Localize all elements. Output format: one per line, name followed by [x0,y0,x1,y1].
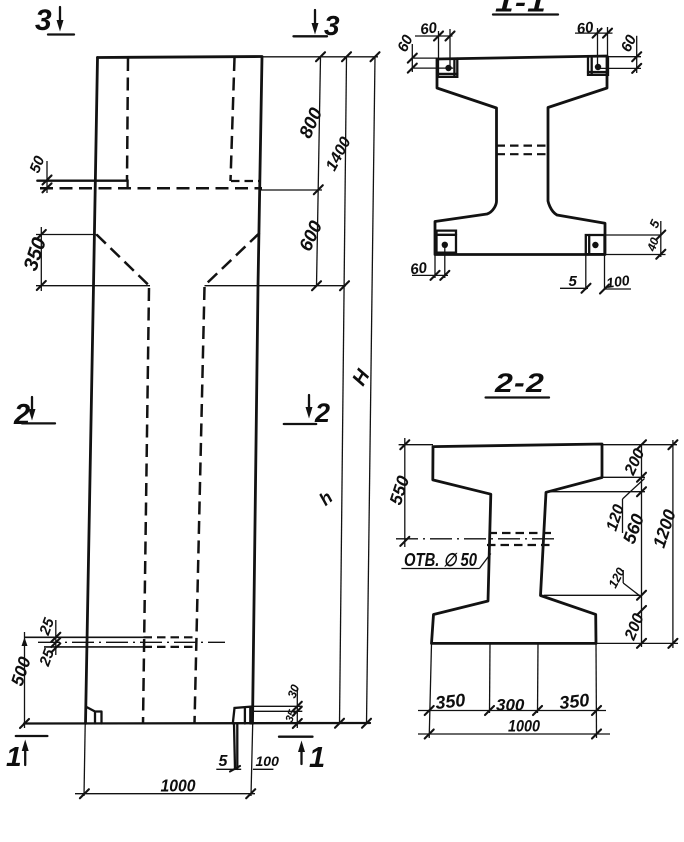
svg-text:1: 1 [6,741,22,772]
svg-text:100: 100 [605,272,631,291]
svg-text:ОТВ. ∅ 50: ОТВ. ∅ 50 [404,550,477,570]
svg-text:350: 350 [434,690,466,713]
svg-text:2-2: 2-2 [494,368,545,398]
svg-text:3: 3 [324,10,340,41]
svg-text:3: 3 [35,4,52,37]
svg-text:300: 300 [496,696,525,715]
svg-text:1: 1 [309,742,325,774]
svg-text:2: 2 [314,398,330,428]
svg-text:350: 350 [558,690,590,713]
svg-text:5: 5 [569,273,578,290]
svg-text:1000: 1000 [508,717,540,736]
svg-text:2: 2 [13,399,30,431]
svg-text:100: 100 [256,753,280,769]
svg-text:60: 60 [576,19,596,38]
svg-text:5: 5 [219,753,229,770]
svg-text:1000: 1000 [161,776,196,796]
